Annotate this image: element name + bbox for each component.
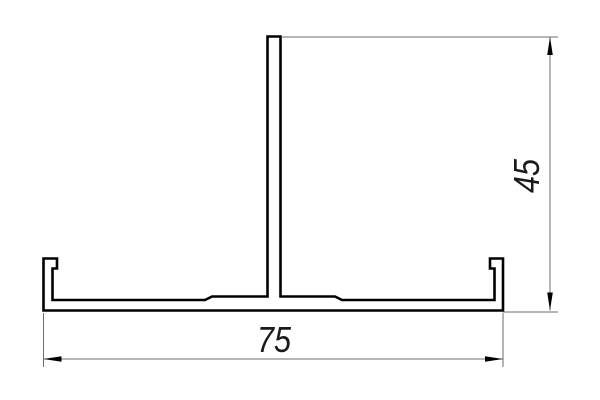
arrowhead-height-top xyxy=(547,37,553,55)
arrowhead-height-bottom xyxy=(547,293,553,311)
dimension-label-height: 45 xyxy=(508,159,548,193)
profile-outline xyxy=(44,37,504,311)
dimension-label-width: 75 xyxy=(257,321,291,361)
arrowhead-width-right xyxy=(485,356,503,362)
arrowhead-width-left xyxy=(44,356,62,362)
technical-drawing-svg: 45 75 xyxy=(0,0,600,400)
drawing-canvas: 45 75 xyxy=(0,0,600,400)
